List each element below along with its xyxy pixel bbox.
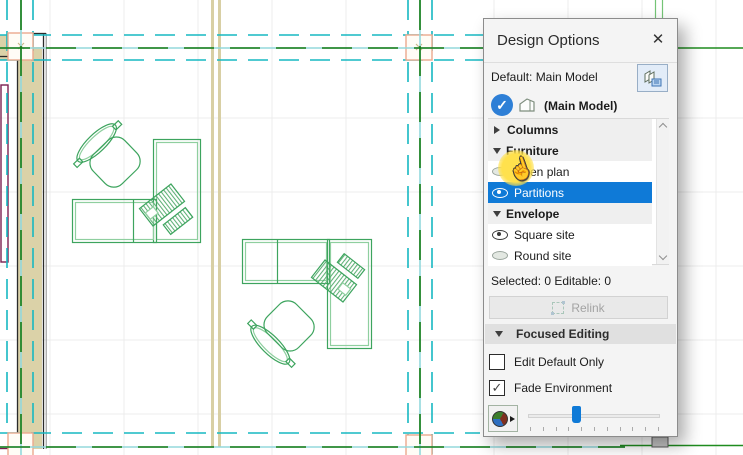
fade-environment-row[interactable]: ✓ Fade Environment <box>489 379 612 397</box>
active-model-label: (Main Model) <box>544 99 617 113</box>
active-model-check-badge: ✓ <box>491 94 513 116</box>
selection-status: Selected: 0 Editable: 0 <box>491 274 611 288</box>
group-label: Columns <box>507 123 558 137</box>
tree-item-square-site[interactable]: Square site <box>488 224 652 245</box>
pie-sphere-icon <box>492 411 508 427</box>
close-icon[interactable]: ✕ <box>647 29 669 51</box>
workstation-1[interactable] <box>68 115 200 242</box>
tree-scrollbar[interactable] <box>656 119 669 264</box>
flyout-arrow-icon <box>510 416 515 422</box>
eye-open-icon[interactable] <box>492 230 508 240</box>
chevron-down-icon <box>495 331 503 337</box>
chevron-down-icon <box>493 211 501 217</box>
environment-display-button[interactable] <box>488 405 518 432</box>
scroll-down-icon[interactable] <box>659 252 667 260</box>
checkbox-label: Fade Environment <box>514 381 612 395</box>
item-label: Round site <box>514 249 571 263</box>
relink-label: Relink <box>571 301 604 315</box>
chevron-right-icon <box>494 126 500 134</box>
fade-slider-thumb[interactable] <box>572 406 581 423</box>
eye-open-icon[interactable] <box>492 188 508 198</box>
relink-icon <box>552 302 564 314</box>
scroll-up-icon[interactable] <box>659 123 667 131</box>
chair-1 <box>68 115 151 198</box>
relink-button[interactable]: Relink <box>489 296 668 319</box>
chevron-down-icon <box>493 148 501 154</box>
slider-tick-marks <box>530 427 659 432</box>
eye-closed-icon[interactable] <box>492 251 508 260</box>
fade-environment-checkbox[interactable]: ✓ <box>489 380 505 396</box>
stacked-sheets-icon <box>643 70 662 87</box>
edit-default-only-checkbox[interactable] <box>489 354 505 370</box>
tree-group-envelope[interactable]: Envelope <box>488 203 652 224</box>
design-options-manager-button[interactable] <box>637 64 668 92</box>
panel-title: Design Options <box>497 32 600 49</box>
options-tree: Columns Furniture Open plan Partitions E… <box>488 118 669 265</box>
item-label: Partitions <box>514 186 564 200</box>
group-label: Envelope <box>506 207 559 221</box>
fade-slider-track[interactable] <box>528 414 660 418</box>
tree-group-columns[interactable]: Columns <box>488 119 652 140</box>
focused-editing-label: Focused Editing <box>516 327 609 341</box>
tree-item-round-site[interactable]: Round site <box>488 245 652 266</box>
model-icon <box>518 97 539 116</box>
focused-editing-header[interactable]: Focused Editing <box>485 324 676 344</box>
checkbox-label: Edit Default Only <box>514 355 604 369</box>
design-options-panel[interactable]: Design Options ✕ Default: Main Model ✓ (… <box>483 18 678 437</box>
item-label: Square site <box>514 228 575 242</box>
default-model-label: Default: Main Model <box>491 70 598 84</box>
chair-2 <box>242 290 325 373</box>
workstation-2[interactable] <box>242 240 371 373</box>
title-separator <box>484 62 677 63</box>
edit-default-only-row[interactable]: Edit Default Only <box>489 353 604 371</box>
column-marker[interactable] <box>652 437 668 447</box>
